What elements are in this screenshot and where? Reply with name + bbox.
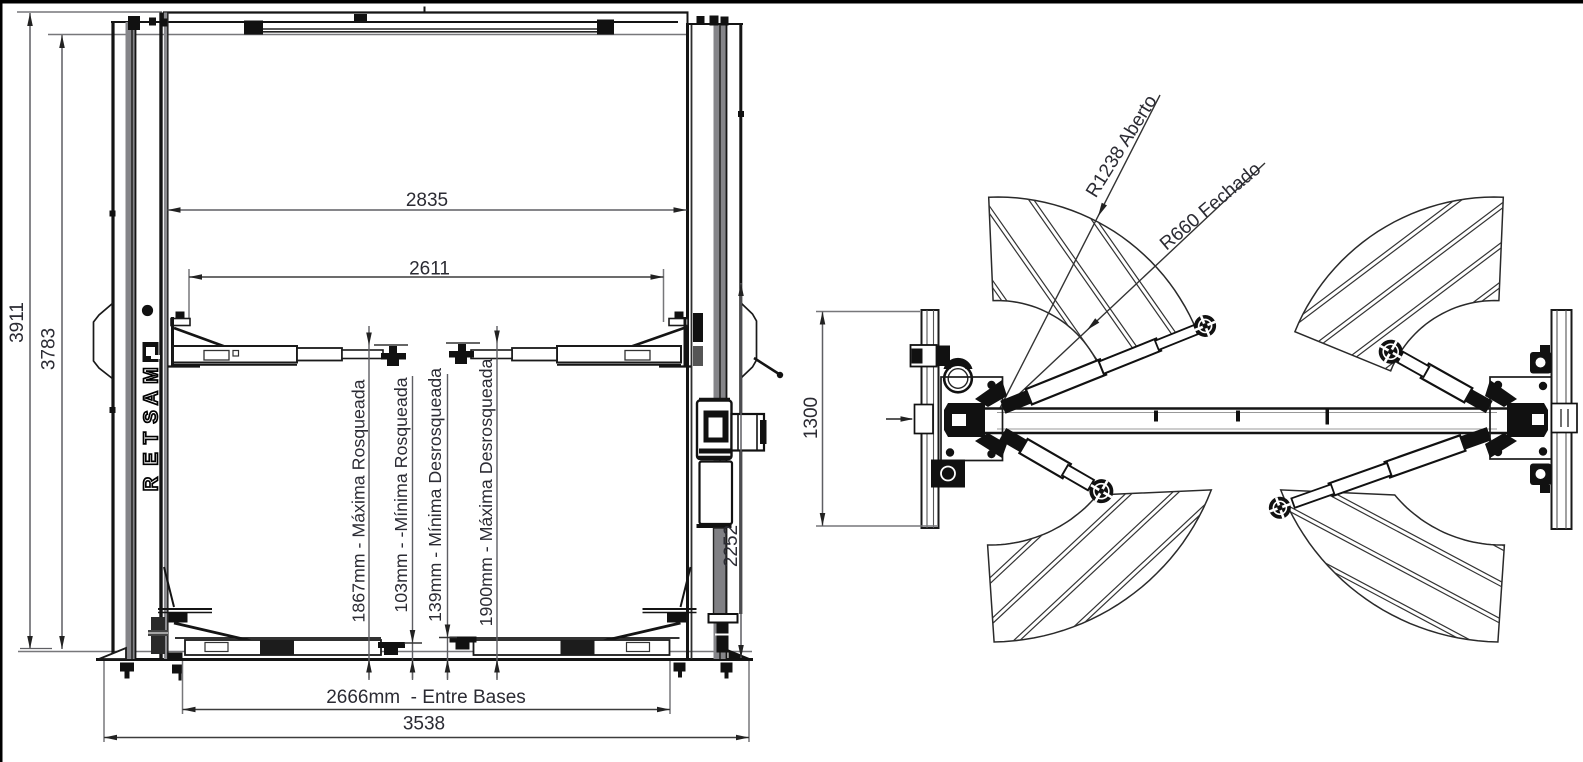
svg-text:1900mm - Máxima Desrosqueada: 1900mm - Máxima Desrosqueada bbox=[476, 358, 496, 626]
svg-text:R: R bbox=[141, 476, 163, 491]
svg-text:A: A bbox=[141, 391, 163, 405]
svg-text:3538: 3538 bbox=[403, 714, 445, 735]
svg-text:1300: 1300 bbox=[801, 397, 822, 439]
svg-text:2666mm - Entre Bases: 2666mm - Entre Bases bbox=[326, 687, 526, 708]
svg-text:S: S bbox=[141, 410, 163, 423]
svg-text:2835: 2835 bbox=[406, 190, 448, 211]
svg-text:3911: 3911 bbox=[7, 302, 28, 343]
svg-text:M: M bbox=[141, 367, 163, 384]
svg-text:E: E bbox=[141, 452, 163, 465]
svg-text:103mm - -Mínima Rosqueada: 103mm - -Mínima Rosqueada bbox=[391, 377, 411, 612]
svg-text:139mm - Mínima Desrosqueada: 139mm - Mínima Desrosqueada bbox=[425, 368, 445, 622]
svg-text:2611: 2611 bbox=[409, 259, 450, 280]
svg-text:2252: 2252 bbox=[721, 525, 742, 567]
svg-text:T: T bbox=[141, 432, 163, 444]
svg-text:1867mm - Máxima Rosqueada: 1867mm - Máxima Rosqueada bbox=[349, 379, 369, 622]
svg-text:3783: 3783 bbox=[39, 328, 60, 370]
